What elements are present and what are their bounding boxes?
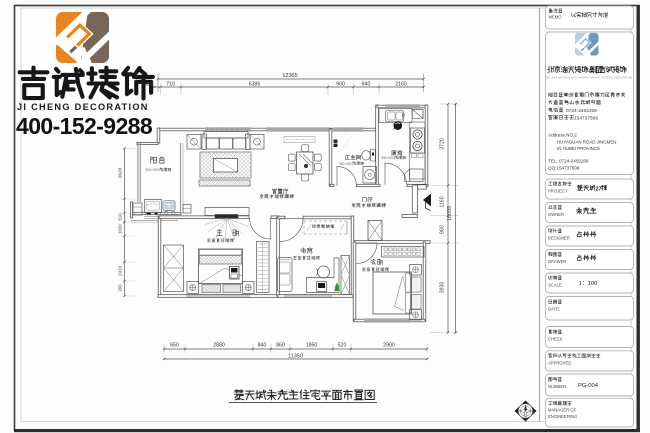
svg-text:DESIGNER: DESIGNER: [548, 236, 570, 241]
svg-text:2160: 2160: [395, 82, 407, 88]
svg-text:710: 710: [166, 82, 175, 88]
svg-text:6395: 6395: [249, 82, 261, 88]
svg-text:900: 900: [336, 82, 345, 88]
svg-text:PROJECT: PROJECT: [548, 189, 568, 194]
svg-text:1910: 1910: [118, 265, 124, 276]
svg-text:SCALE: SCALE: [548, 283, 562, 288]
svg-text:HUYAGUAN ROAD JINGMEN: HUYAGUAN ROAD JINGMEN: [557, 140, 616, 145]
svg-text:940: 940: [362, 82, 371, 88]
svg-text:ENGINEERING: ENGINEERING: [548, 414, 577, 419]
svg-text:300×300: 300×300: [381, 156, 394, 160]
svg-text:16055: 16055: [447, 206, 453, 221]
svg-text:BEI JING HAI TIAN DECORATION G: BEI JING HAI TIAN DECORATION GROUP JICHE…: [546, 76, 633, 80]
svg-text:1：100: 1：100: [579, 281, 598, 287]
svg-text:JI CHENG DECORATION: JI CHENG DECORATION: [17, 102, 149, 112]
svg-text:650: 650: [170, 343, 179, 349]
svg-text:860: 860: [276, 343, 285, 349]
svg-text:PG-004: PG-004: [578, 383, 599, 389]
svg-text:DRAWER: DRAWER: [548, 259, 566, 264]
svg-text:APPROVED: APPROVED: [548, 361, 571, 366]
svg-text:1160: 1160: [440, 196, 446, 207]
svg-text:DATE: DATE: [548, 307, 559, 312]
svg-text:1950: 1950: [306, 343, 318, 349]
svg-text:Address:NO.2: Address:NO.2: [548, 133, 577, 138]
svg-text:0724-2402208: 0724-2402208: [566, 108, 597, 114]
svg-text:3620: 3620: [118, 167, 124, 178]
svg-text:12365: 12365: [282, 73, 298, 79]
svg-text:400-152-9288: 400-152-9288: [16, 113, 153, 139]
svg-text:11350: 11350: [288, 354, 303, 360]
svg-text:510: 510: [118, 213, 123, 221]
svg-text:MANAGER OF: MANAGER OF: [548, 408, 577, 413]
svg-text:200: 200: [118, 284, 123, 292]
svg-text:27: 27: [596, 187, 602, 193]
svg-text:1420: 1420: [141, 82, 153, 88]
svg-text:960: 960: [440, 225, 446, 234]
svg-text:520: 520: [338, 343, 347, 349]
svg-text:MEMO: MEMO: [549, 14, 563, 19]
svg-text:1020: 1020: [118, 224, 123, 234]
svg-text:TEL: 0724-2402208: TEL: 0724-2402208: [548, 159, 589, 164]
svg-text:OWNER: OWNER: [548, 212, 564, 217]
svg-text:CHECK: CHECK: [548, 337, 563, 342]
svg-text:NUMBER: NUMBER: [548, 384, 566, 389]
svg-text:2880: 2880: [213, 343, 225, 349]
svg-text:IN HUBEI PROVINCE: IN HUBEI PROVINCE: [557, 146, 600, 151]
svg-text:300×300: 300×300: [339, 162, 352, 166]
svg-text:QQ:154737506: QQ:154737506: [548, 166, 580, 171]
svg-text:840: 840: [258, 343, 267, 349]
svg-text:300×300: 300×300: [146, 168, 159, 172]
svg-text:154737506: 154737506: [574, 115, 598, 121]
svg-text:2900: 2900: [383, 343, 395, 349]
svg-text:3930: 3930: [440, 282, 446, 294]
svg-text:3720: 3720: [440, 138, 446, 150]
